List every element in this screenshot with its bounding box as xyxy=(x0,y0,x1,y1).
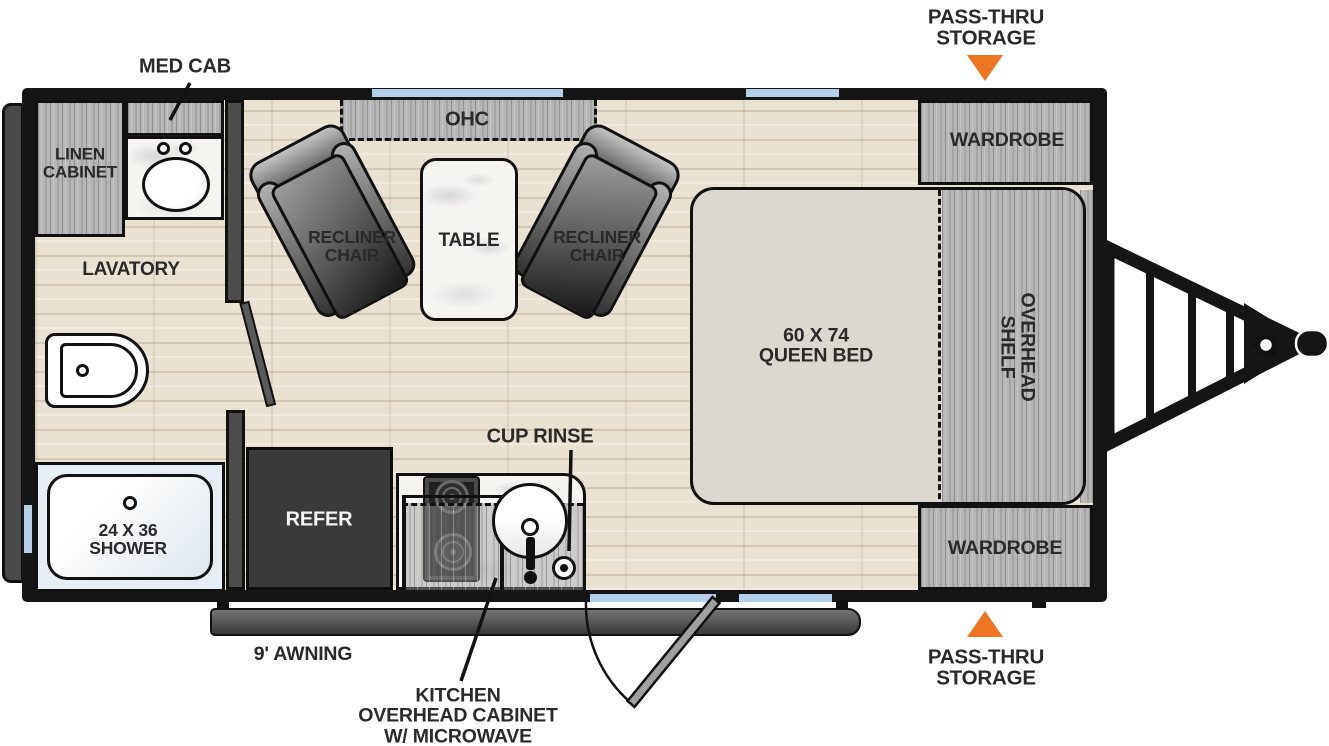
ohc-label: OHC xyxy=(445,110,489,131)
kitchen-ohc-label: KITCHEN OVERHEAD CABINET W/ MICROWAVE xyxy=(358,686,557,746)
rv-floorplan: PASS-THRU STORAGE PASS-THRU STORAGE MED … xyxy=(0,0,1329,746)
wardrobe-bottom-label: WARDROBE xyxy=(948,538,1062,558)
lav-sink xyxy=(142,157,210,212)
refer-label: REFER xyxy=(286,510,353,531)
shower-label: 24 X 36 SHOWER xyxy=(89,521,167,557)
toilet-flush-button xyxy=(76,364,89,377)
pass-thru-storage-label-bottom: PASS-THRU STORAGE xyxy=(928,647,1044,690)
med-cab xyxy=(125,100,224,136)
pass-thru-arrow-top xyxy=(967,55,1003,81)
faucet-knob-right xyxy=(179,142,192,155)
entry-door-glass xyxy=(590,594,716,602)
hitch-coupler xyxy=(1296,330,1328,357)
faucet-base xyxy=(521,518,539,536)
shower-drain xyxy=(123,496,137,510)
awning-label: 9' AWNING xyxy=(254,644,353,664)
cup-rinse-sprayer xyxy=(552,556,576,580)
window-left xyxy=(24,505,32,553)
tongue-jack xyxy=(1258,337,1274,353)
queen-bed-label: 60 X 74 QUEEN BED xyxy=(759,326,873,367)
awning-bar xyxy=(210,608,861,636)
med-cab-label: MED CAB xyxy=(139,57,231,78)
toilet xyxy=(45,333,149,408)
recliner-left-label: RECLINER CHAIR xyxy=(308,228,396,264)
table-label: TABLE xyxy=(439,231,500,251)
wardrobe-top-label: WARDROBE xyxy=(950,130,1064,150)
bed-dashed-divider xyxy=(938,190,941,505)
recliner-right-label: RECLINER CHAIR xyxy=(553,228,641,264)
hitch-apex-plate xyxy=(1244,303,1309,384)
lavatory-label: LAVATORY xyxy=(82,260,180,280)
bath-wall-upper xyxy=(225,100,244,303)
window-top-1 xyxy=(372,89,563,97)
toilet-bowl xyxy=(60,343,138,398)
microwave-cabinet-outline xyxy=(402,495,504,590)
linen-cabinet-label: LINEN CABINET xyxy=(43,145,117,180)
rear-cap xyxy=(2,103,24,583)
faucet-stem xyxy=(526,537,535,570)
window-bottom xyxy=(739,594,832,602)
wall-stub xyxy=(1032,600,1046,608)
pass-thru-arrow-bottom xyxy=(967,611,1003,637)
window-top-2 xyxy=(746,89,839,97)
overhead-shelf-label: OVERHEAD SHELF xyxy=(997,293,1038,402)
hitch-frame xyxy=(1096,242,1328,450)
faucet-knob-left xyxy=(157,142,170,155)
faucet-sprayer-dot xyxy=(524,571,537,584)
bath-wall-lower xyxy=(226,410,245,590)
cup-rinse-label: CUP RINSE xyxy=(487,427,594,448)
pass-thru-storage-label-top: PASS-THRU STORAGE xyxy=(928,7,1044,50)
